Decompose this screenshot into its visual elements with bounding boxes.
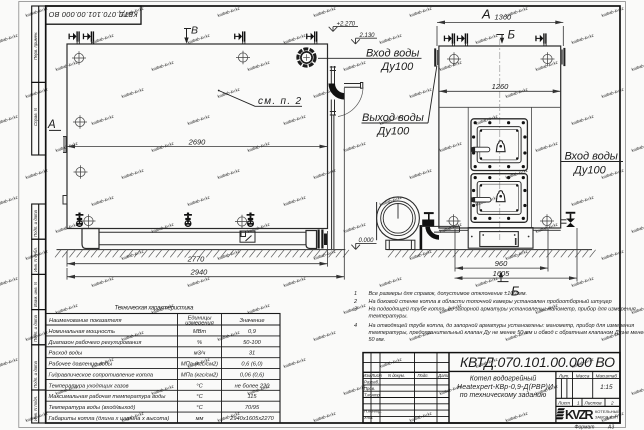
svg-text:ЗАВОД РЭП: ЗАВОД РЭП <box>595 415 618 420</box>
svg-text:см. п. 2: см. п. 2 <box>258 96 301 107</box>
svg-text:Все размеры для справок, допус: Все размеры для справок, допустимое откл… <box>369 291 528 297</box>
svg-text:Гидравлическое сопротивление к: Гидравлическое сопротивление котла <box>49 372 154 378</box>
svg-text:Листов: Листов <box>584 400 603 405</box>
svg-text:КВТД.070.101.00.000 ВО: КВТД.070.101.00.000 ВО <box>460 354 615 370</box>
svg-text:В: В <box>191 25 198 37</box>
svg-text:КВТД.070.101.00.000 ВО: КВТД.070.101.00.000 ВО <box>49 10 138 19</box>
svg-text:Лист: Лист <box>370 373 382 378</box>
svg-text:2: 2 <box>353 299 357 305</box>
svg-text:Б: Б <box>508 30 516 42</box>
svg-text:Разраб.: Разраб. <box>364 380 379 385</box>
svg-text:Вход воды: Вход воды <box>366 48 419 60</box>
svg-text:70/95: 70/95 <box>245 405 260 411</box>
svg-text:Ду100: Ду100 <box>572 164 607 176</box>
svg-text:1: 1 <box>577 400 580 405</box>
svg-text:2: 2 <box>610 400 614 405</box>
svg-text:1: 1 <box>354 291 357 297</box>
svg-text:115: 115 <box>247 394 257 400</box>
svg-text:0,9: 0,9 <box>248 329 257 335</box>
svg-text:А3: А3 <box>607 424 614 430</box>
svg-text:2940х1605х2270: 2940х1605х2270 <box>229 416 274 422</box>
svg-text:Техническая характеристика: Техническая характеристика <box>115 306 195 312</box>
svg-text:%: % <box>197 340 202 346</box>
svg-text:Т.контр.: Т.контр. <box>364 392 381 397</box>
svg-text:Утв.: Утв. <box>364 415 374 420</box>
svg-text:0,06 (0,6): 0,06 (0,6) <box>240 372 264 378</box>
svg-text:Перв. примен.: Перв. примен. <box>33 31 38 60</box>
svg-text:50-100: 50-100 <box>243 340 262 346</box>
svg-text:°С: °С <box>196 405 203 411</box>
svg-text:Габариты котла (длина х ширина: Габариты котла (длина х ширина х высота) <box>49 416 170 422</box>
svg-text:Масштаб: Масштаб <box>596 373 618 378</box>
svg-text:Ду100: Ду100 <box>380 61 415 73</box>
svg-text:Инв. N подл.: Инв. N подл. <box>33 396 38 421</box>
svg-text:Пров.: Пров. <box>364 386 375 391</box>
svg-text:°С: °С <box>196 394 203 400</box>
svg-text:Подп. и дата: Подп. и дата <box>33 360 38 388</box>
svg-text:Лит.: Лит. <box>558 373 570 378</box>
svg-text:Максимальная рабочая температу: Максимальная рабочая температура воды <box>49 394 167 400</box>
svg-text:0.000: 0.000 <box>359 238 375 244</box>
svg-text:2.130: 2.130 <box>359 33 376 39</box>
svg-text:2770: 2770 <box>187 255 206 264</box>
svg-text:Значение: Значение <box>240 318 265 324</box>
svg-text:Дата: Дата <box>437 373 450 378</box>
svg-text:На подводящей трубе котла, д: На подводящей трубе котла, до запорной а… <box>369 306 636 313</box>
svg-text:МПа (кгс/см2): МПа (кгс/см2) <box>181 362 218 368</box>
svg-text:Диапазон рабочего регулировани: Диапазон рабочего регулирования <box>48 340 142 346</box>
svg-text:А: А <box>47 119 56 131</box>
svg-text:Подп. и дата: Подп. и дата <box>33 314 38 342</box>
svg-text:мм: мм <box>196 416 204 422</box>
svg-text:Лист: Лист <box>557 400 570 405</box>
svg-text:Н.контр.: Н.контр. <box>364 409 382 414</box>
svg-text:Подп.: Подп. <box>418 373 429 378</box>
svg-text:Номинальная мощность: Номинальная мощность <box>49 329 115 335</box>
svg-text:Вход воды: Вход воды <box>565 151 618 163</box>
svg-text:Инв. N дубл.: Инв. N дубл. <box>33 247 38 272</box>
svg-text:Расход воды: Расход воды <box>49 351 83 357</box>
svg-text:КОТЕЛЬНЫЙ: КОТЕЛЬНЫЙ <box>595 409 620 414</box>
svg-text:KVZR: KVZR <box>565 408 594 422</box>
svg-text:не более 220: не более 220 <box>235 383 271 389</box>
svg-text:°С: °С <box>196 383 203 389</box>
svg-text:МПа (кгс/см2): МПа (кгс/см2) <box>181 372 218 378</box>
svg-text:На боковой стенке котла в обла: На боковой стенке котла в области топочн… <box>369 298 612 305</box>
svg-text:Рабочее давление воды: Рабочее давление воды <box>49 362 114 368</box>
svg-text:Подп. и дата: Подп. и дата <box>33 209 38 237</box>
svg-text:4: 4 <box>354 323 357 329</box>
svg-text:температуры.: температуры. <box>369 314 408 320</box>
svg-text:Масса: Масса <box>576 373 590 378</box>
svg-text:Котел водогрейный: Котел водогрейный <box>470 375 537 383</box>
svg-text:Температура воды (вход/выход): Температура воды (вход/выход) <box>49 405 136 411</box>
svg-text:Ду100: Ду100 <box>376 125 411 137</box>
svg-text:Изм: Изм <box>363 373 371 378</box>
svg-text:0,6 (6,0): 0,6 (6,0) <box>241 362 262 368</box>
svg-text:Справ. N: Справ. N <box>33 107 38 126</box>
svg-text:На отводящей трубе котла, до з: На отводящей трубе котла, до запорной ар… <box>369 322 635 329</box>
svg-text:50 мм.: 50 мм. <box>369 337 386 343</box>
svg-text:31: 31 <box>249 351 255 357</box>
svg-text:МВт: МВт <box>193 329 207 335</box>
svg-text:Heatexpert-КВр-0,9-Д(РВР)И: Heatexpert-КВр-0,9-Д(РВР)И <box>457 384 554 391</box>
svg-text:N докум.: N докум. <box>388 373 405 378</box>
svg-text:м3/ч: м3/ч <box>194 351 206 357</box>
svg-text:2690: 2690 <box>188 138 207 147</box>
svg-text:Выход воды: Выход воды <box>362 112 424 124</box>
svg-text:+2.270: +2.270 <box>337 21 356 27</box>
svg-text:1:15: 1:15 <box>600 384 613 391</box>
svg-text:1260: 1260 <box>492 82 510 91</box>
svg-text:1360: 1360 <box>495 13 513 22</box>
svg-text:Температура уходящих газов: Температура уходящих газов <box>49 383 129 389</box>
svg-text:А: А <box>481 7 491 22</box>
svg-text:Формат: Формат <box>575 424 595 430</box>
svg-text:измерения: измерения <box>185 320 213 326</box>
svg-text:температуры, предохранительный: температуры, предохранительный клапан Ду… <box>369 329 644 336</box>
svg-text:Взам. инв. N: Взам. инв. N <box>33 281 38 307</box>
svg-text:Наименование показателя: Наименование показателя <box>49 318 122 324</box>
svg-text:по техническому заданию: по техническому заданию <box>460 391 547 399</box>
svg-text:960: 960 <box>495 259 508 268</box>
svg-text:2940: 2940 <box>190 268 209 277</box>
